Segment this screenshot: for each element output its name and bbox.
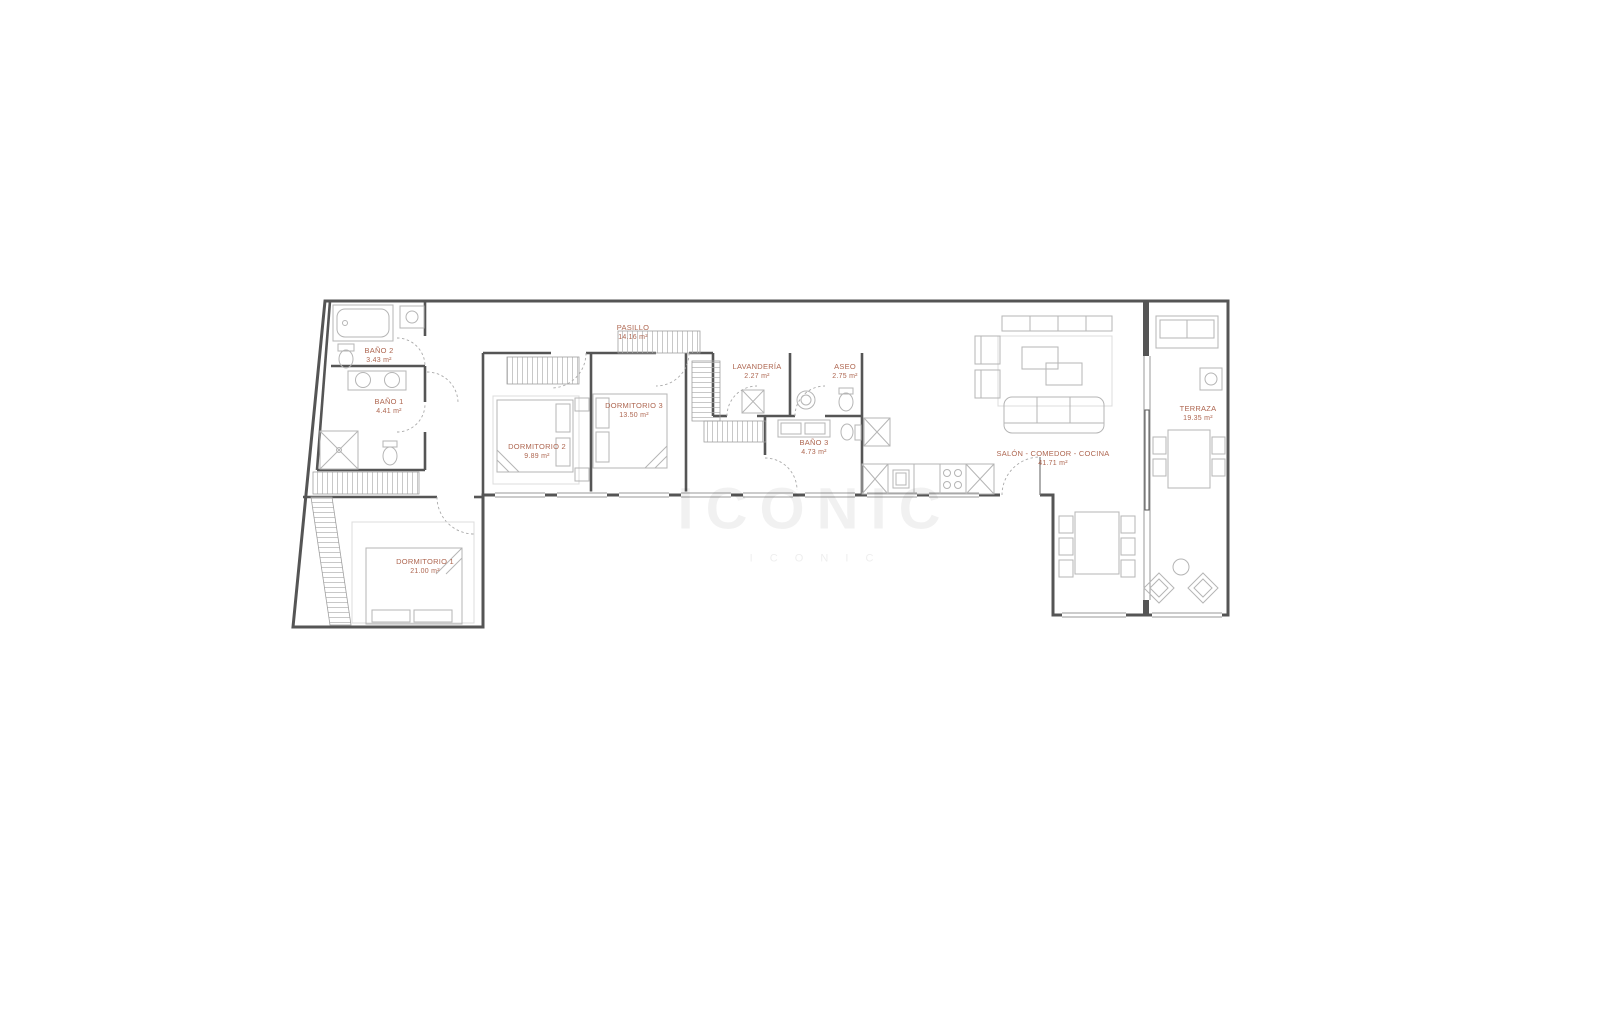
room-label-bano3: BAÑO 3 4.73 m² bbox=[799, 437, 828, 459]
room-name: BAÑO 3 bbox=[799, 437, 828, 448]
floor-plan-page: ICONIC I C O N I C BAÑO 2 3.43 m² BAÑO 1… bbox=[0, 0, 1600, 1026]
room-area: 13.50 m² bbox=[605, 411, 663, 422]
room-name: ASEO bbox=[832, 361, 857, 372]
room-name: DORMITORIO 2 bbox=[508, 441, 566, 452]
room-label-pasillo: PASILLO 14.16 m² bbox=[617, 322, 649, 344]
room-label-terraza: TERRAZA 19.35 m² bbox=[1180, 403, 1217, 425]
room-name: TERRAZA bbox=[1180, 403, 1217, 414]
room-area: 41.71 m² bbox=[996, 459, 1109, 470]
room-name: LAVANDERÍA bbox=[733, 361, 782, 372]
wardrobe-dormitorio-2 bbox=[507, 357, 579, 384]
room-name: SALÓN - COMEDOR - COCINA bbox=[996, 448, 1109, 459]
room-label-aseo: ASEO 2.75 m² bbox=[832, 361, 857, 383]
room-label-salon: SALÓN - COMEDOR - COCINA 41.71 m² bbox=[996, 448, 1109, 470]
stair-flight-horizontal bbox=[704, 421, 766, 442]
room-label-bano1: BAÑO 1 4.41 m² bbox=[374, 396, 403, 418]
room-area: 4.73 m² bbox=[799, 448, 828, 459]
room-area: 2.27 m² bbox=[733, 372, 782, 383]
room-name: DORMITORIO 1 bbox=[396, 556, 454, 567]
stair-flight-vertical bbox=[692, 361, 720, 421]
room-label-dormitorio2: DORMITORIO 2 9.89 m² bbox=[508, 441, 566, 463]
room-area: 19.35 m² bbox=[1180, 414, 1217, 425]
room-label-bano2: BAÑO 2 3.43 m² bbox=[364, 345, 393, 367]
wardrobe-dormitorio-1 bbox=[313, 472, 419, 494]
room-label-dormitorio3: DORMITORIO 3 13.50 m² bbox=[605, 400, 663, 422]
room-label-dormitorio1: DORMITORIO 1 21.00 m² bbox=[396, 556, 454, 578]
room-label-lavanderia: LAVANDERÍA 2.27 m² bbox=[733, 361, 782, 383]
room-area: 4.41 m² bbox=[374, 407, 403, 418]
room-area: 3.43 m² bbox=[364, 356, 393, 367]
room-area: 2.75 m² bbox=[832, 372, 857, 383]
room-name: BAÑO 1 bbox=[374, 396, 403, 407]
room-area: 21.00 m² bbox=[396, 567, 454, 578]
floor-plan-drawing bbox=[0, 0, 1600, 1026]
room-name: DORMITORIO 3 bbox=[605, 400, 663, 411]
room-area: 9.89 m² bbox=[508, 452, 566, 463]
room-name: PASILLO bbox=[617, 322, 649, 333]
room-area: 14.16 m² bbox=[617, 333, 649, 344]
room-name: BAÑO 2 bbox=[364, 345, 393, 356]
